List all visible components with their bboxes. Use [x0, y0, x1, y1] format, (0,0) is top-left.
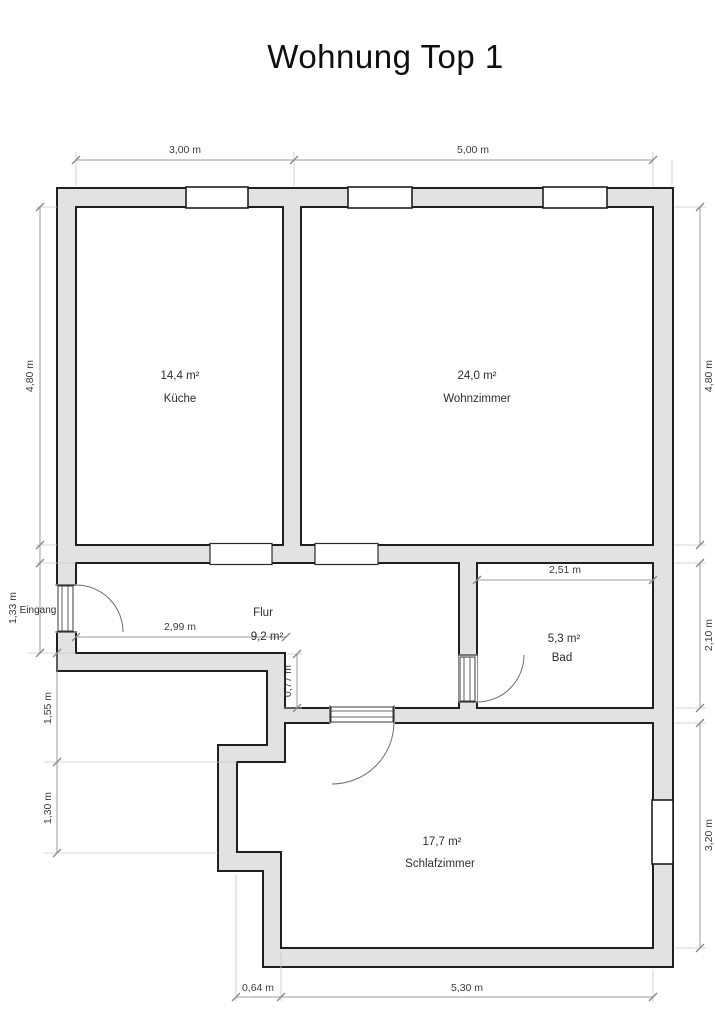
dim-flur-lower-depth: 0,77 m — [282, 665, 294, 697]
window-kueche — [186, 187, 248, 208]
window-wohnzimmer-right — [543, 187, 607, 208]
label-flur-name: Flur — [253, 607, 273, 619]
passage-wohnzimmer-flur — [315, 544, 378, 565]
label-wohnzimmer-area: 24,0 m² — [458, 370, 497, 382]
dim-left-entrance: 1,33 m — [7, 592, 19, 624]
dim-top-wohnzimmer: 5,00 m — [457, 144, 489, 156]
label-kueche-area: 14,4 m² — [161, 370, 200, 382]
floor-plan-page: Wohnung Top 1 — [0, 0, 715, 1024]
dim-right-schlafzimmer-height: 3,20 m — [703, 819, 715, 851]
window-schlafzimmer — [652, 800, 673, 864]
label-bad-name: Bad — [552, 652, 572, 664]
label-flur-area: 9,2 m² — [251, 631, 284, 643]
dim-right-bad-height: 2,10 m — [703, 619, 715, 651]
dim-bottom-schlafzimmer-width: 5,30 m — [451, 982, 483, 994]
dim-right-wohnzimmer-height: 4,80 m — [703, 360, 715, 392]
dim-flur-width: 2,99 m — [164, 621, 196, 633]
label-wohnzimmer-name: Wohnzimmer — [443, 393, 511, 405]
label-schlafzimmer-name: Schlafzimmer — [405, 858, 475, 870]
dim-top-kueche: 3,00 m — [169, 144, 201, 156]
floor-plan-drawing: 3,00 m 5,00 m 4,80 m 1,33 m 1,55 m 1,30 … — [0, 0, 715, 1024]
dim-bad-width: 2,51 m — [549, 564, 581, 576]
dim-left-step-lower: 1,30 m — [42, 792, 54, 824]
label-schlafzimmer-area: 17,7 m² — [423, 836, 462, 848]
label-kueche-name: Küche — [164, 393, 197, 405]
window-wohnzimmer-left — [348, 187, 412, 208]
label-entrance: Eingang — [20, 605, 57, 616]
dim-left-step-upper: 1,55 m — [42, 692, 54, 724]
dim-bottom-offset: 0,64 m — [242, 982, 274, 994]
label-bad-area: 5,3 m² — [548, 633, 581, 645]
dim-left-kueche-height: 4,80 m — [24, 360, 36, 392]
passage-kueche-flur — [210, 544, 272, 565]
